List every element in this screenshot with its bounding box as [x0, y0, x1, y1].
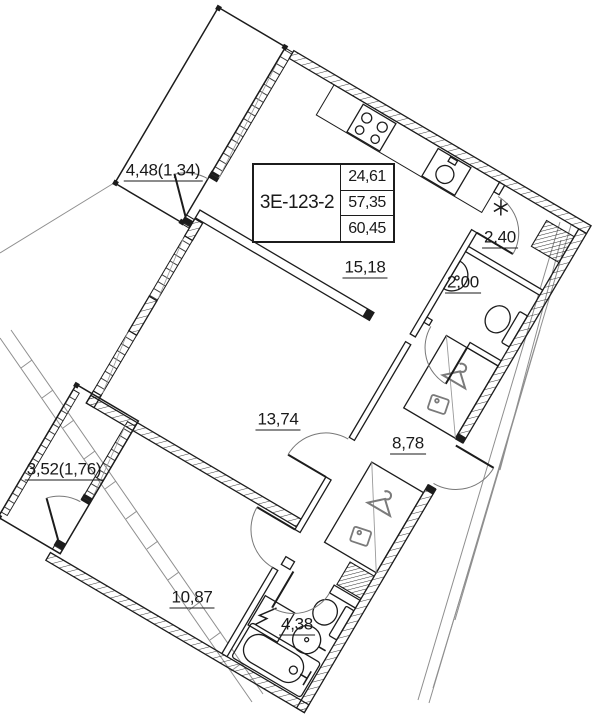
room-label-bathroom: 4,38 [279, 615, 315, 636]
living-area-value: 24,61 [341, 165, 393, 191]
room-label-storage: 2,40 [482, 228, 518, 249]
room-label-wc: 2,00 [445, 273, 481, 294]
bag-icon [347, 523, 374, 549]
room-label-bedroom-bottom: 10,87 [169, 588, 214, 609]
room-label-balcony-top: 4,48(1,34) [124, 161, 203, 182]
neighbor-band-ticks [21, 360, 242, 671]
neighbor-band-left [0, 330, 263, 702]
room-label-bedroom-middle: 13,74 [255, 410, 300, 431]
door-leaf-balcony-left [31, 498, 73, 540]
room-label-kitchen-living: 15,18 [342, 258, 387, 279]
total-area-value: 60,45 [341, 216, 393, 241]
neighbor-wall-line [0, 183, 114, 253]
wall-right-upper [455, 229, 586, 443]
door-leaf-bathroom [272, 572, 293, 608]
glazing-slashes [36, 53, 336, 502]
floor-plan: 3Е-123-2 24,61 57,35 60,45 4,48(1,34) 15… [0, 0, 600, 725]
door-arc-balcony-left [47, 486, 81, 514]
door-leaf-entrance [456, 446, 494, 468]
door-arcs [0, 49, 600, 686]
title-block: 3Е-123-2 24,61 57,35 60,45 [252, 163, 395, 243]
wardrobe-lower [325, 462, 424, 573]
wall-left-b [129, 296, 157, 335]
asterisk-marker [490, 197, 511, 217]
bag-icon [425, 391, 452, 417]
wall-right-lower [297, 485, 436, 713]
door-arc-wc [410, 326, 468, 384]
area-no-balcony-value: 57,35 [341, 191, 393, 217]
room-label-balcony-left: 3,52(1,76) [25, 460, 104, 481]
room-label-hallway: 8,78 [390, 434, 426, 455]
unit-code: 3Е-123-2 [254, 165, 341, 241]
door-leaf-bedroom-middle [288, 455, 326, 477]
